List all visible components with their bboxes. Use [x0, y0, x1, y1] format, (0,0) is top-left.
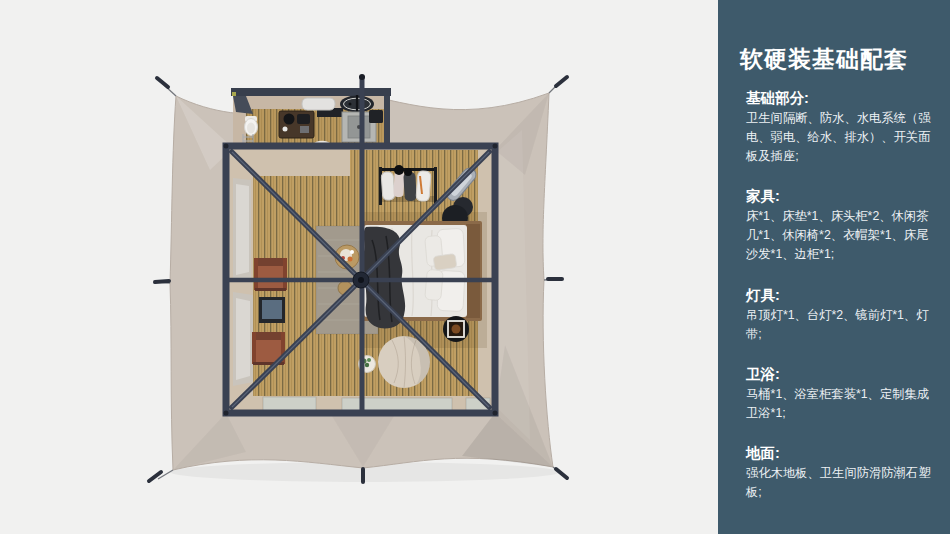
- spec-section-bathroom: 卫浴: 马桶*1、浴室柜套装*1、定制集成卫浴*1;: [746, 365, 934, 423]
- frame-hub-center: [358, 277, 364, 283]
- cabinet-box: [369, 110, 383, 123]
- vanity-desk: [279, 111, 314, 138]
- spec-section-lighting: 灯具: 吊顶灯*1、台灯*2、镜前灯*1、灯带;: [746, 286, 934, 344]
- toilet: [245, 116, 258, 136]
- bed: [361, 221, 482, 328]
- headboard: [466, 224, 480, 318]
- spec-section-basics: 基础部分: 卫生间隔断、防水、水电系统（强电、弱电、给水、排水）、开关面板及插座…: [746, 89, 934, 166]
- spec-section-body: 卫生间隔断、防水、水电系统（强电、弱电、给水、排水）、开关面板及插座;: [746, 109, 934, 166]
- spec-section-label: 地面:: [746, 444, 934, 462]
- spec-section-body: 床*1、床垫*1、床头柜*2、休闲茶几*1、休闲椅*2、衣帽架*1、床尾沙发*1…: [746, 207, 934, 264]
- spec-section-furniture: 家具: 床*1、床垫*1、床头柜*2、休闲茶几*1、休闲椅*2、衣帽架*1、床尾…: [746, 187, 934, 264]
- spec-section-body: 吊顶灯*1、台灯*2、镜前灯*1、灯带;: [746, 306, 934, 344]
- bathroom: [231, 88, 391, 148]
- spec-sidebar: 软硬装基础配套 基础部分: 卫生间隔断、防水、水电系统（强电、弱电、给水、排水）…: [718, 0, 950, 534]
- bathroom-right-wall: [384, 90, 390, 148]
- lumbar-pillow: [433, 254, 457, 271]
- chair-side-table: [259, 297, 285, 323]
- spec-section-label: 卫浴:: [746, 365, 934, 383]
- tent-illustration: [0, 0, 718, 534]
- wood-floor-upper: [350, 150, 478, 177]
- spec-section-label: 家具:: [746, 187, 934, 205]
- wardrobe-rack: [379, 165, 437, 205]
- hat: [394, 165, 404, 175]
- ridge-pole-cap: [359, 74, 365, 80]
- spec-section-body: 强化木地板、卫生间防滑防潮石塑板;: [746, 464, 934, 502]
- spec-section-label: 灯具:: [746, 286, 934, 304]
- tray-table: [443, 316, 469, 342]
- spec-section-flooring: 地面: 强化木地板、卫生间防滑防潮石塑板;: [746, 444, 934, 502]
- sidebar-title: 软硬装基础配套: [740, 44, 934, 75]
- slide: 软硬装基础配套 基础部分: 卫生间隔断、防水、水电系统（强电、弱电、给水、排水）…: [0, 0, 950, 534]
- spec-section-body: 马桶*1、浴室柜套装*1、定制集成卫浴*1;: [746, 385, 934, 423]
- bathroom-roof-beam: [231, 88, 391, 96]
- skylight-panel: [302, 98, 335, 110]
- tent-topdown-render: [0, 0, 718, 534]
- roof-accent: [232, 92, 236, 96]
- spec-section-label: 基础部分:: [746, 89, 934, 107]
- hat: [404, 168, 412, 176]
- lounge-chair: [254, 258, 287, 291]
